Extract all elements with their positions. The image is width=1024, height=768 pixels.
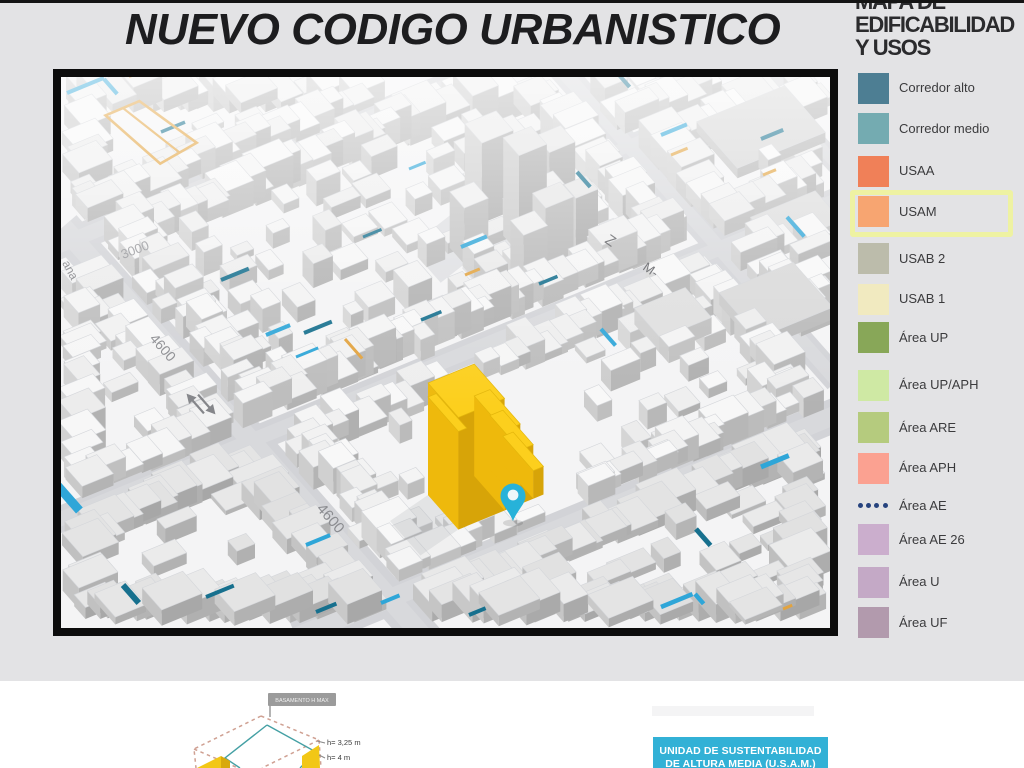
- svg-text:BASAMENTO H MAX: BASAMENTO H MAX: [275, 698, 329, 704]
- svg-text:h= 4 m: h= 4 m: [327, 753, 350, 762]
- svg-text:h= 3,25 m: h= 3,25 m: [327, 738, 361, 747]
